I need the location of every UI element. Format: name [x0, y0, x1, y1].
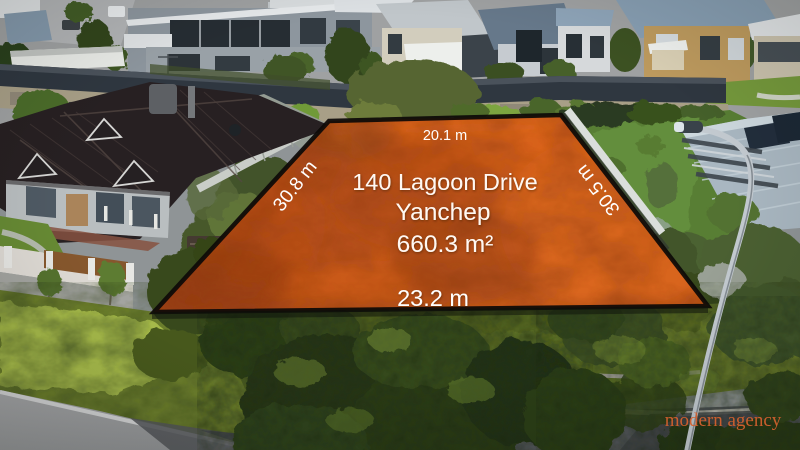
svg-text:modern agency: modern agency	[665, 410, 782, 431]
